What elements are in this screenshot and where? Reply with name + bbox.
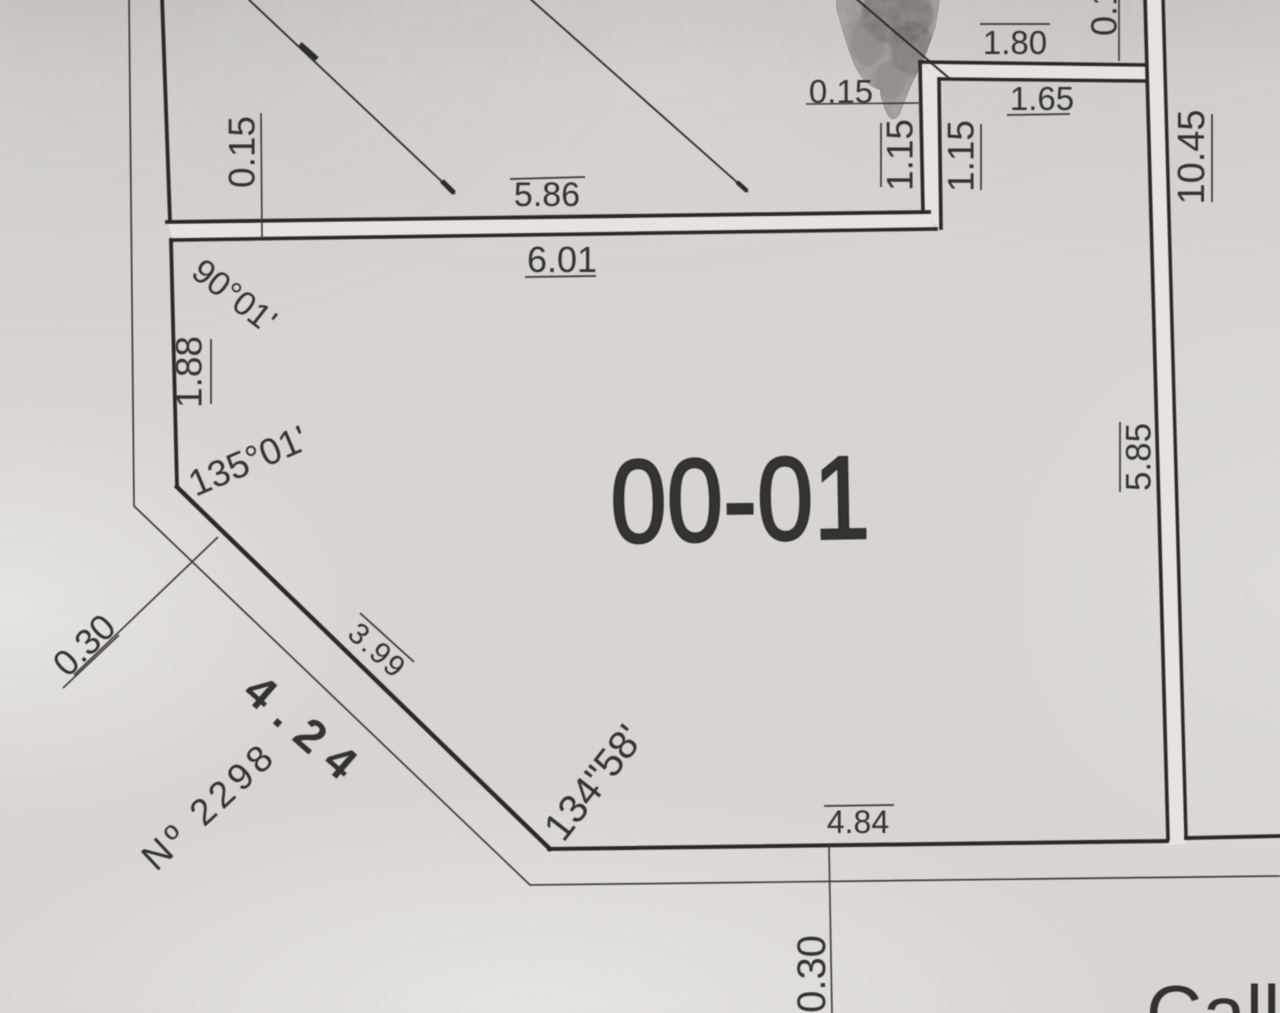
svg-text:Calle: Calle xyxy=(1146,969,1280,1013)
